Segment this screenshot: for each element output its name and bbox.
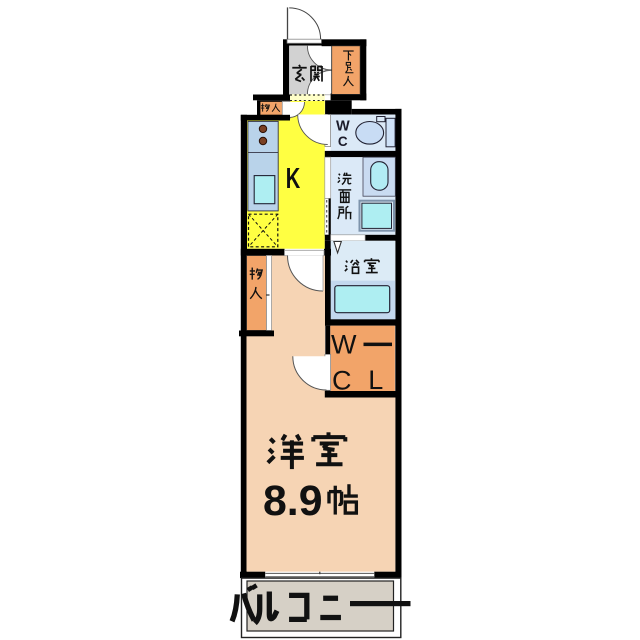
svg-text:8.9: 8.9: [263, 477, 323, 525]
svg-text:K: K: [286, 163, 301, 195]
svg-text:C: C: [332, 366, 352, 396]
svg-text:W: W: [331, 330, 357, 360]
svg-text:C: C: [338, 134, 348, 149]
svg-text:L: L: [368, 365, 383, 395]
svg-text:W: W: [336, 119, 350, 135]
